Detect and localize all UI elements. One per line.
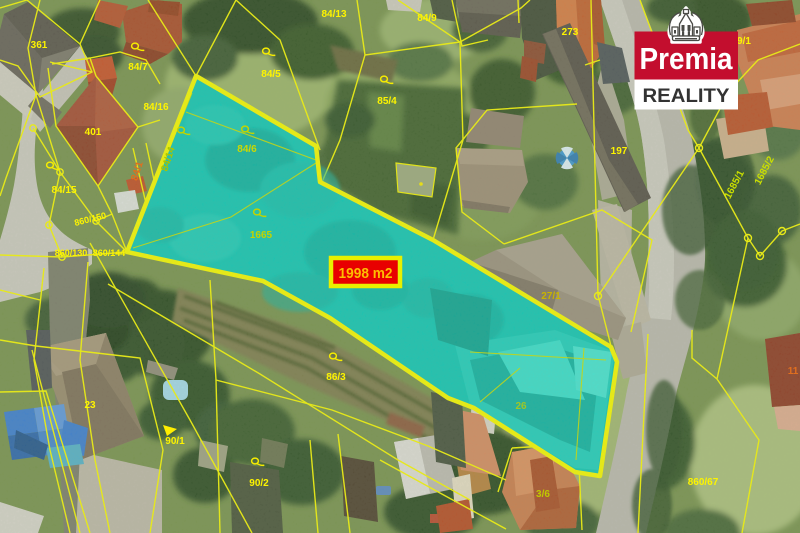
svg-text:860/130: 860/130 [55,248,88,258]
svg-text:90/2: 90/2 [249,478,269,489]
svg-text:27/1: 27/1 [541,291,561,302]
svg-text:1665: 1665 [250,230,273,241]
svg-text:361: 361 [31,40,48,51]
svg-text:84/9: 84/9 [417,13,437,24]
svg-text:401: 401 [85,127,102,138]
svg-text:860/67: 860/67 [688,477,719,488]
svg-text:1998 m2: 1998 m2 [339,265,393,282]
svg-text:23: 23 [84,400,96,411]
svg-text:REALITY: REALITY [643,86,730,107]
svg-text:84/6: 84/6 [237,144,257,155]
svg-text:84/7: 84/7 [128,62,148,73]
svg-text:85/4: 85/4 [377,96,397,107]
svg-text:11: 11 [788,366,799,377]
svg-text:860/144: 860/144 [93,248,126,258]
svg-text:84/16: 84/16 [143,102,168,113]
svg-text:90/1: 90/1 [165,436,185,447]
svg-text:26: 26 [515,401,527,412]
svg-text:84/5: 84/5 [261,69,281,80]
svg-text:Premia: Premia [640,41,734,76]
svg-text:84/15: 84/15 [51,185,76,196]
svg-text:86/3: 86/3 [326,372,346,383]
svg-text:9/1: 9/1 [737,36,751,47]
svg-text:273: 273 [562,27,579,38]
svg-text:84/13: 84/13 [321,9,346,20]
svg-text:3/6: 3/6 [536,489,550,500]
svg-text:197: 197 [611,146,628,157]
